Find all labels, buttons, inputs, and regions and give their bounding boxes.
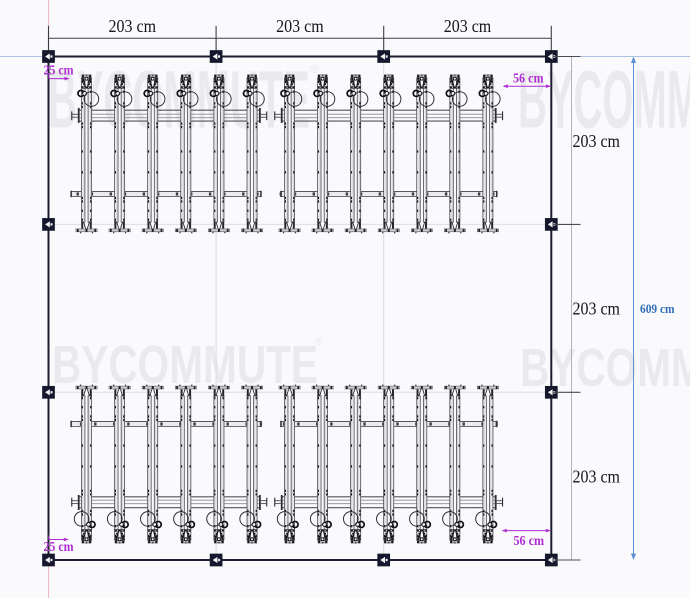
- svg-text:203 cm: 203 cm: [573, 299, 621, 319]
- svg-text:25 cm: 25 cm: [44, 62, 75, 77]
- svg-text:203 cm: 203 cm: [573, 466, 621, 486]
- svg-text:56 cm: 56 cm: [514, 533, 545, 548]
- svg-text:25 cm: 25 cm: [44, 539, 75, 554]
- svg-text:203 cm: 203 cm: [444, 16, 492, 36]
- svg-text:56 cm: 56 cm: [513, 71, 544, 86]
- svg-text:203 cm: 203 cm: [276, 16, 324, 36]
- svg-text:609 cm: 609 cm: [640, 301, 675, 316]
- svg-text:203 cm: 203 cm: [573, 131, 621, 151]
- svg-text:203 cm: 203 cm: [109, 16, 157, 36]
- svg-text:®: ®: [315, 337, 323, 348]
- svg-text:®: ®: [310, 62, 319, 76]
